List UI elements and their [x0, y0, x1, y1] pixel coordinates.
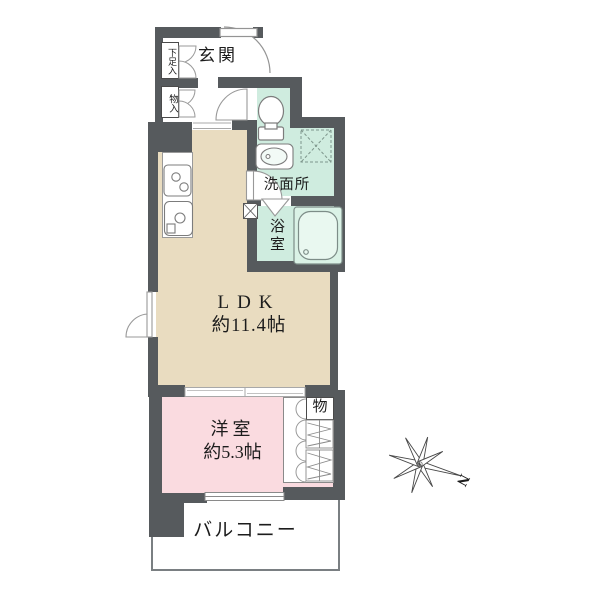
wall: [158, 122, 192, 152]
room-toilet-floor: [257, 88, 290, 128]
floorplan-canvas: 玄関 下足入 物入 洗面所 浴室 LDK 約11.4帖 洋室 約5.3帖 物 バ…: [0, 0, 600, 600]
compass-icon: [389, 437, 461, 493]
balcony-label: バルコニー: [151, 520, 340, 542]
genkan-label: 玄関: [179, 46, 257, 66]
wall: [330, 261, 338, 391]
wall: [155, 493, 207, 503]
bedroom-label: 洋室: [160, 419, 305, 440]
washroom-door-gap: [247, 171, 257, 200]
corridor-opening: [192, 122, 232, 130]
bedroom-area-label: 約5.3帖: [160, 442, 305, 463]
closet-label: 物: [306, 399, 334, 416]
shoe-cabinet-label: 下足入: [163, 45, 177, 77]
toilet-door-gap: [247, 88, 257, 120]
bathroom-door-gap: [261, 196, 291, 206]
wall: [150, 385, 185, 397]
hall-storage-label: 物入: [163, 90, 177, 116]
wall: [148, 122, 158, 292]
washroom-label: 洗面所: [258, 177, 316, 194]
pipe-space-box: [243, 203, 258, 219]
ldk-area-label: 約11.4帖: [190, 316, 308, 337]
bathroom-label: 浴室: [266, 212, 284, 260]
wall: [155, 27, 221, 38]
entrance-door-gap: [221, 27, 253, 38]
compass-north-label: N: [450, 468, 474, 492]
corridor-floor: [179, 87, 247, 122]
wall: [283, 487, 338, 500]
ldk-label: LDK: [190, 292, 308, 314]
kitchen-counter: [162, 152, 193, 238]
wall: [253, 27, 263, 38]
wall: [333, 390, 345, 500]
wall: [334, 117, 345, 272]
ldk-side-door-gap: [145, 292, 156, 337]
